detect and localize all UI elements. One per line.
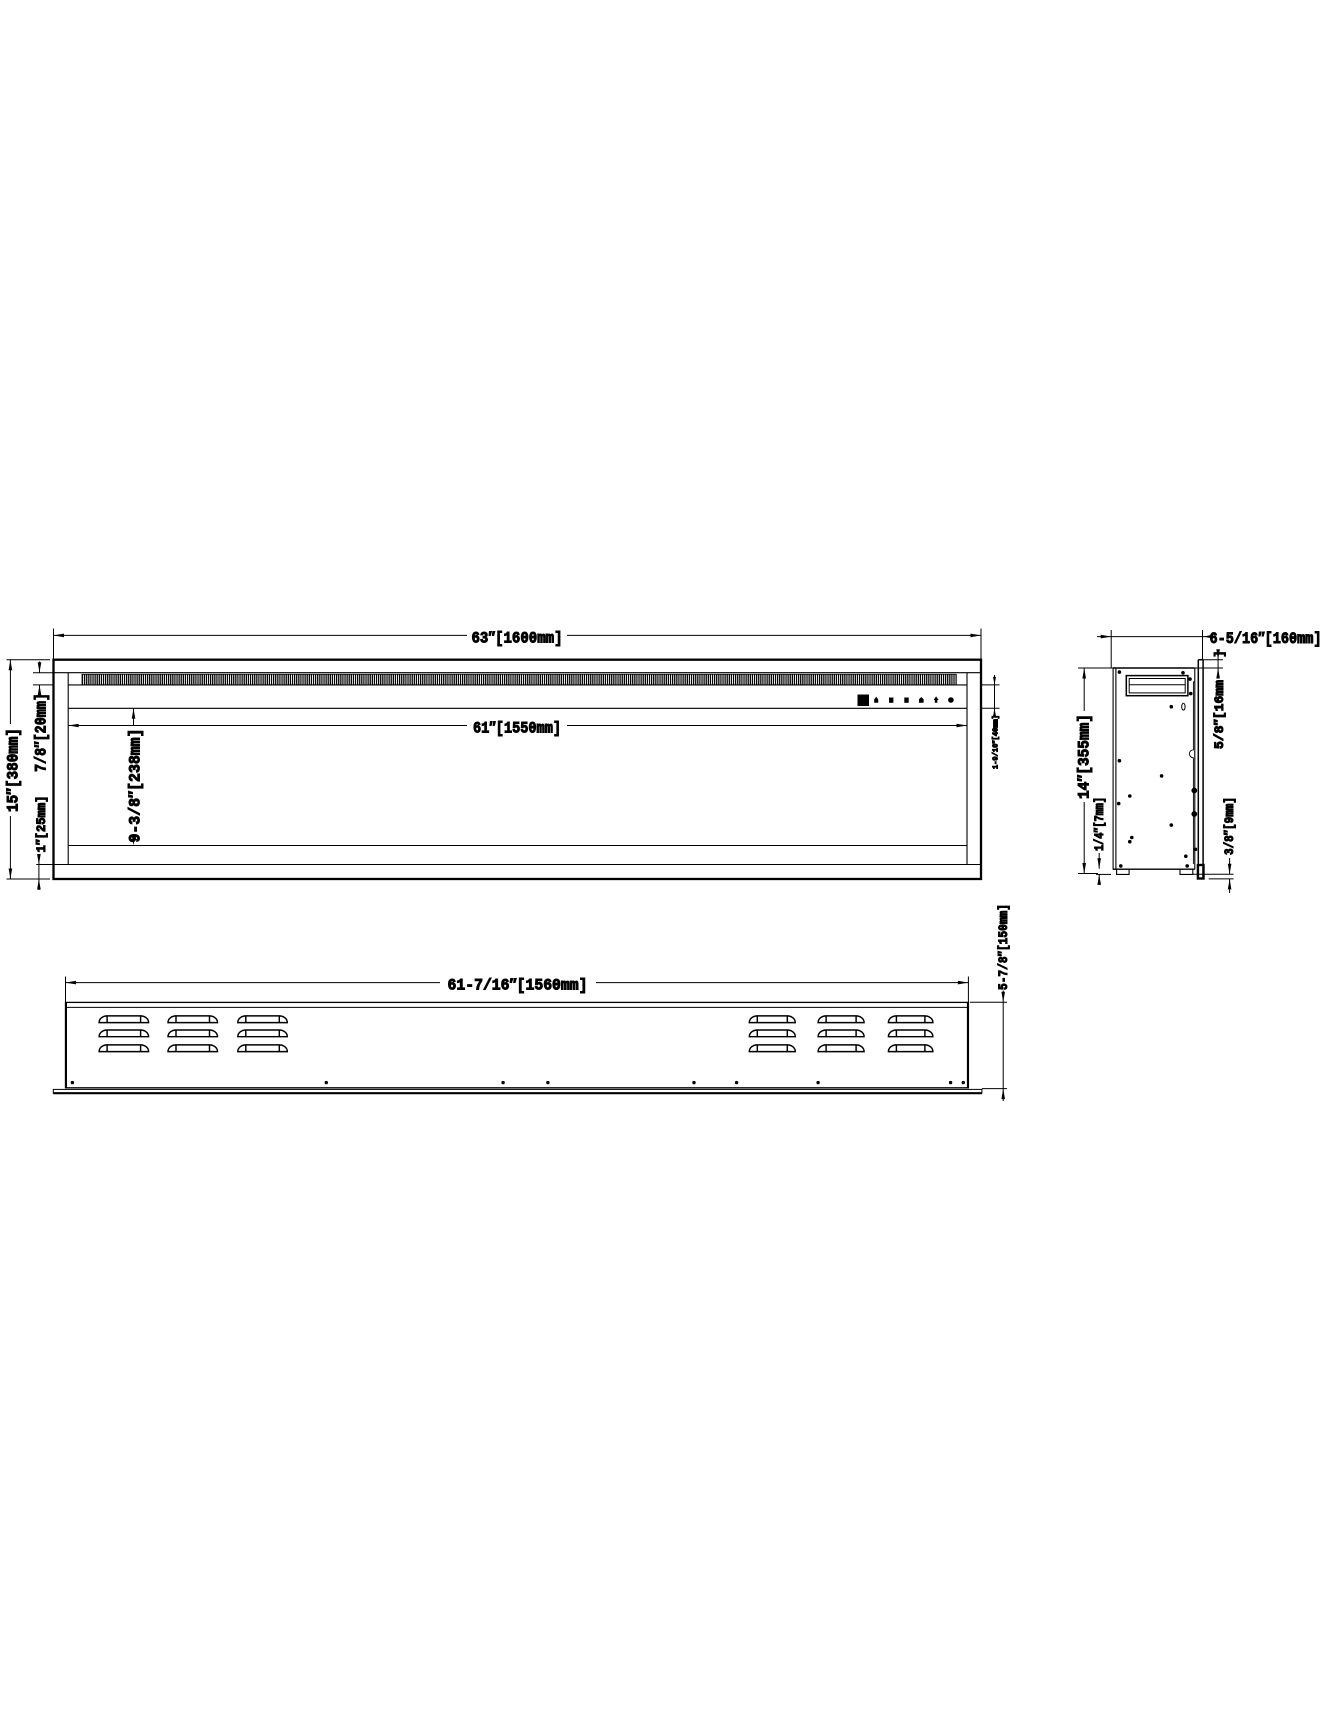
svg-text:9-3/8″[238mm]: 9-3/8″[238mm]: [127, 729, 145, 843]
svg-text:]: ]: [1213, 650, 1227, 657]
svg-text:6-5/16″[160mm]: 6-5/16″[160mm]: [1210, 630, 1322, 648]
svg-text:3/8″[9mm]: 3/8″[9mm]: [1221, 797, 1237, 855]
svg-text:63″[1600mm]: 63″[1600mm]: [472, 629, 563, 647]
svg-text:61″[1550mm]: 61″[1550mm]: [473, 719, 561, 737]
svg-text:5-7/8″[150mm]: 5-7/8″[150mm]: [995, 904, 1011, 990]
svg-text:5/8″[16mm: 5/8″[16mm: [1211, 680, 1227, 749]
svg-text:7/8″[20mm]: 7/8″[20mm]: [33, 693, 51, 772]
svg-text:15″[380mm]: 15″[380mm]: [5, 728, 23, 812]
svg-text:1″[25mm]: 1″[25mm]: [33, 796, 49, 853]
svg-text:14″[355mm]: 14″[355mm]: [1076, 714, 1094, 799]
svg-text:61-7/16″[1560mm]: 61-7/16″[1560mm]: [448, 977, 588, 995]
svg-text:1/4″[7mm]: 1/4″[7mm]: [1091, 797, 1107, 851]
svg-text:1-9/16″[40mm]: 1-9/16″[40mm]: [990, 715, 1000, 769]
